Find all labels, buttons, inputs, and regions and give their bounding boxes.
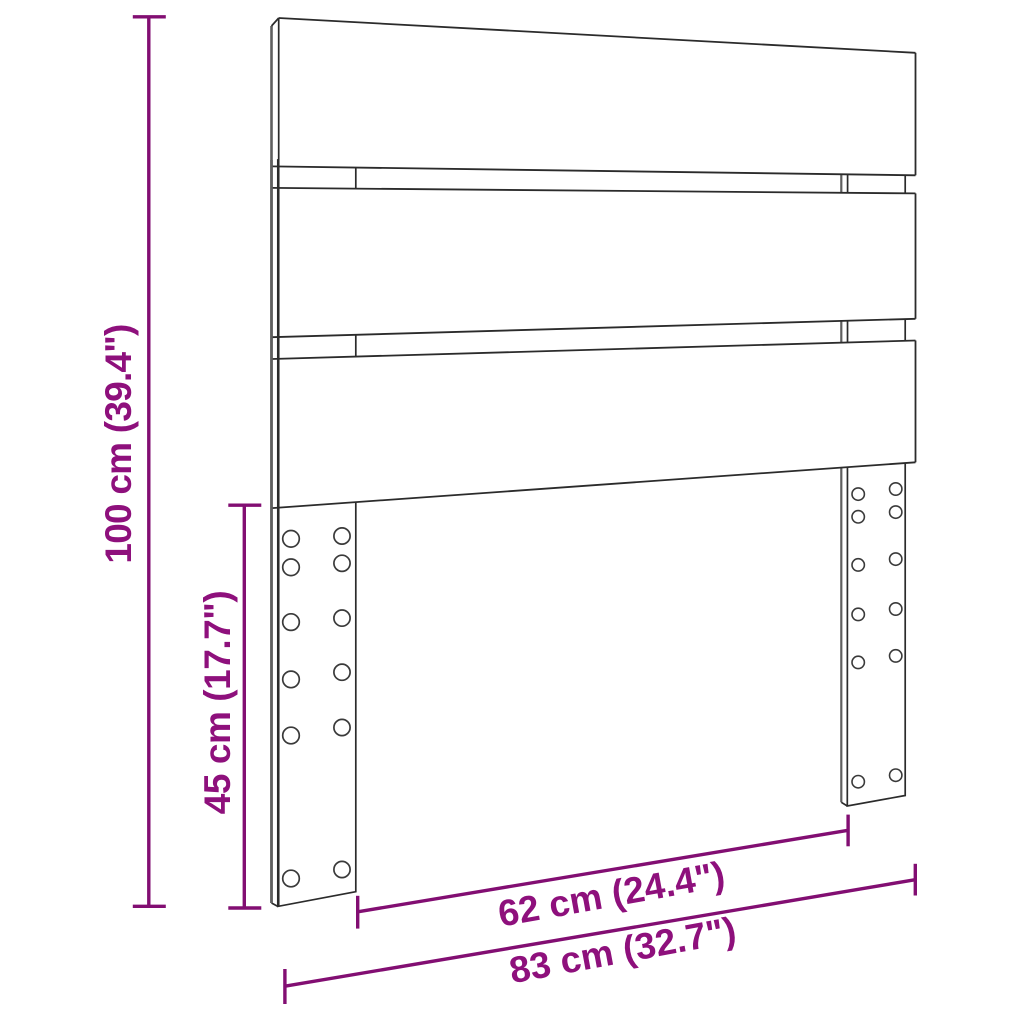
svg-text:100 cm (39.4"): 100 cm (39.4") <box>98 324 139 563</box>
svg-text:45 cm (17.7"): 45 cm (17.7") <box>197 591 238 815</box>
